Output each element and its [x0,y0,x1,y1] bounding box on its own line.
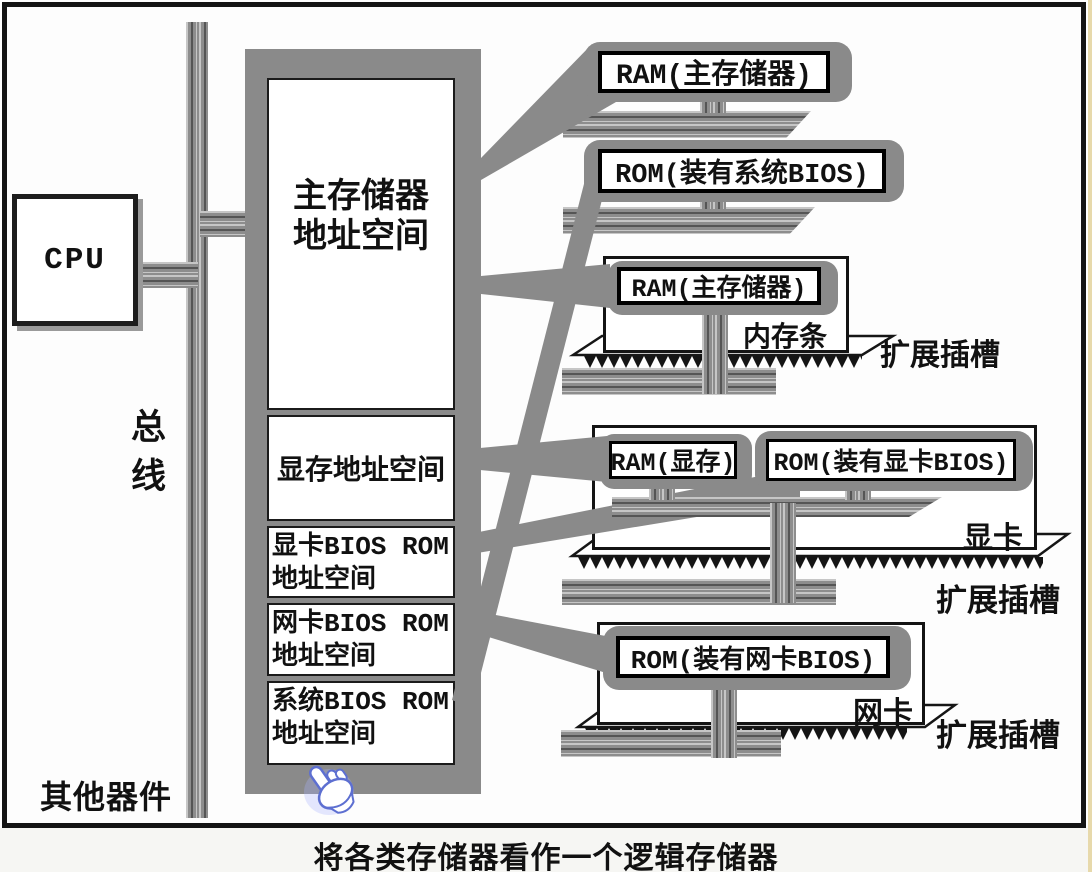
chip-rom-video-bios-label: ROM(装有显卡BIOS) [766,439,1016,481]
address-space-box: 主存储器 地址空间 显存地址空间 显卡BIOS ROM 地址空间 网卡BIOS … [245,49,481,794]
wire-drop-memory-module [702,310,728,394]
section-main-memory-space: 主存储器 地址空间 [267,78,455,410]
page-edge-strip [1088,0,1092,872]
bus-label: 总线 [120,408,171,506]
expansion-slot-label-1: 扩展插槽 [880,330,1000,374]
chip-rom-network-bios: ROM(装有网卡BIOS) [603,626,911,690]
chip-ram-video: RAM(显存) [600,434,752,489]
diagram-stage: CPU 总线 其他器件 主存储器 地址空间 显存地址空间 显卡BIOS ROM … [0,0,1092,872]
wire-drop-network-card [711,688,737,758]
expansion-slot-label-3: 扩展插槽 [936,710,1060,755]
video-card-pins [578,557,1043,569]
chip-ram-video-label: RAM(显存) [609,441,737,479]
hand-cursor-icon [296,756,360,820]
caption-strip: 将各类存储器看作一个逻辑存储器 [0,828,1092,872]
other-devices-label: 其他器件 [40,772,172,818]
chip-rom-network-bios-label: ROM(装有网卡BIOS) [616,636,890,678]
callout-ram-main-top-label: RAM(主存储器) [598,51,830,93]
chip-ram-on-module-label: RAM(主存储器) [617,267,821,305]
cpu-label: CPU [44,243,106,278]
wire-band-ram-main [563,111,811,138]
cpu-to-bus-connector [136,262,198,288]
chip-rom-video-bios: ROM(装有显卡BIOS) [755,431,1033,491]
wire-drop-video-card [770,503,796,603]
wire-band-network-card [561,730,781,757]
section-network-bios-space: 网卡BIOS ROM 地址空间 [267,603,455,676]
wire-band-rom-system [563,207,815,234]
section-video-bios-space: 显卡BIOS ROM 地址空间 [267,526,455,598]
expansion-slot-label-2: 扩展插槽 [936,575,1060,620]
callout-ram-main-top: RAM(主存储器) [584,42,852,102]
memory-module-name: 内存条 [743,315,827,355]
diagram-caption: 将各类存储器看作一个逻辑存储器 [0,833,1092,872]
cpu-box: CPU [12,194,138,326]
network-card-name: 网卡 [853,688,913,732]
system-bus-line [186,22,208,818]
section-system-bios-space: 系统BIOS ROM 地址空间 [267,681,455,765]
callout-rom-system-bios-label: ROM(装有系统BIOS) [598,149,886,193]
callout-rom-system-bios: ROM(装有系统BIOS) [584,140,904,202]
chip-ram-on-module: RAM(主存储器) [608,261,838,315]
wire-band-memory-module [562,368,776,395]
video-card-name: 显卡 [963,513,1023,557]
section-video-memory-space: 显存地址空间 [267,415,455,521]
